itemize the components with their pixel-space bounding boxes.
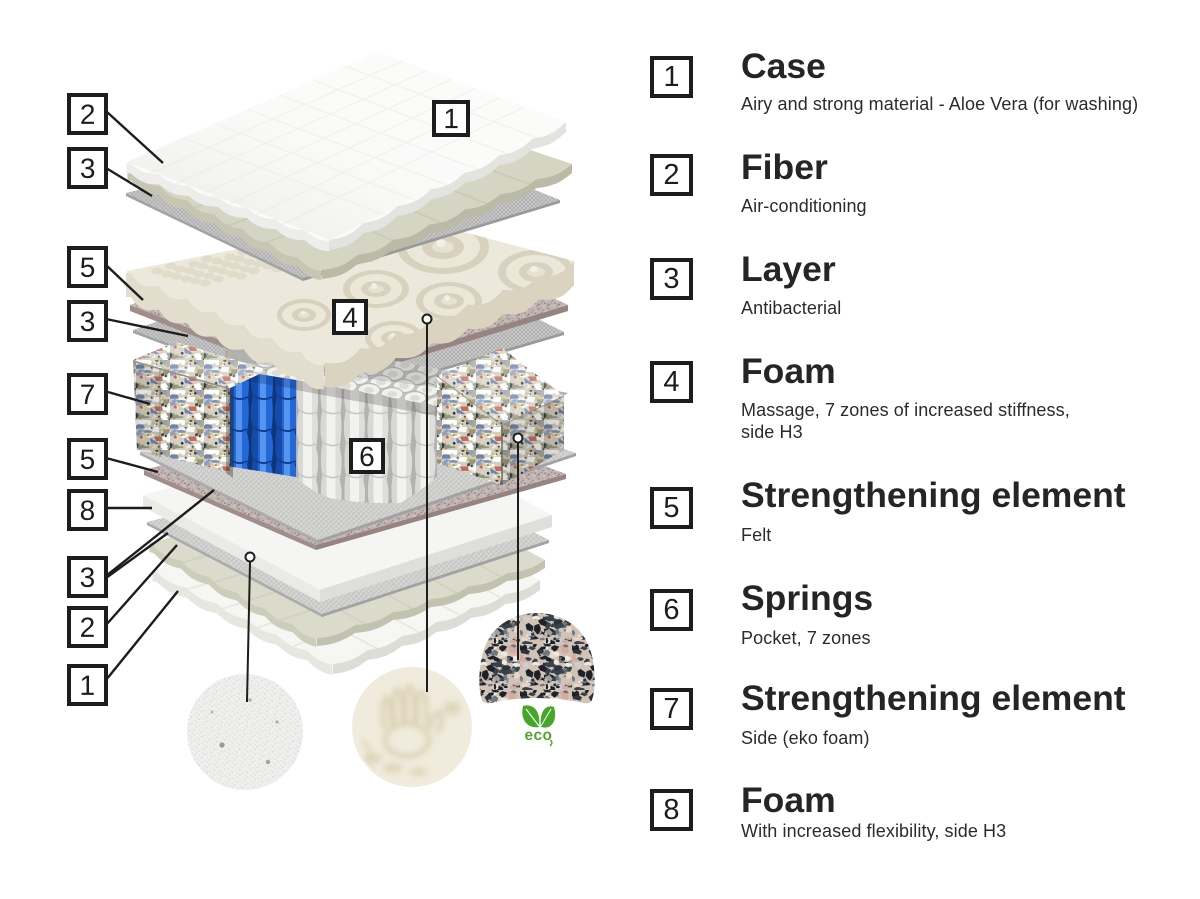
svg-text:6: 6 bbox=[359, 441, 375, 472]
svg-text:8: 8 bbox=[80, 495, 96, 526]
svg-text:1: 1 bbox=[80, 670, 96, 701]
svg-text:7: 7 bbox=[80, 379, 96, 410]
svg-text:1: 1 bbox=[443, 103, 459, 134]
svg-text:3: 3 bbox=[80, 562, 96, 593]
svg-text:5: 5 bbox=[80, 252, 96, 283]
svg-text:5: 5 bbox=[80, 444, 96, 475]
svg-text:3: 3 bbox=[80, 306, 96, 337]
svg-text:4: 4 bbox=[342, 302, 358, 333]
svg-text:3: 3 bbox=[80, 153, 96, 184]
svg-text:2: 2 bbox=[80, 99, 96, 130]
svg-text:2: 2 bbox=[80, 612, 96, 643]
svg-text:eco: eco bbox=[524, 727, 552, 744]
